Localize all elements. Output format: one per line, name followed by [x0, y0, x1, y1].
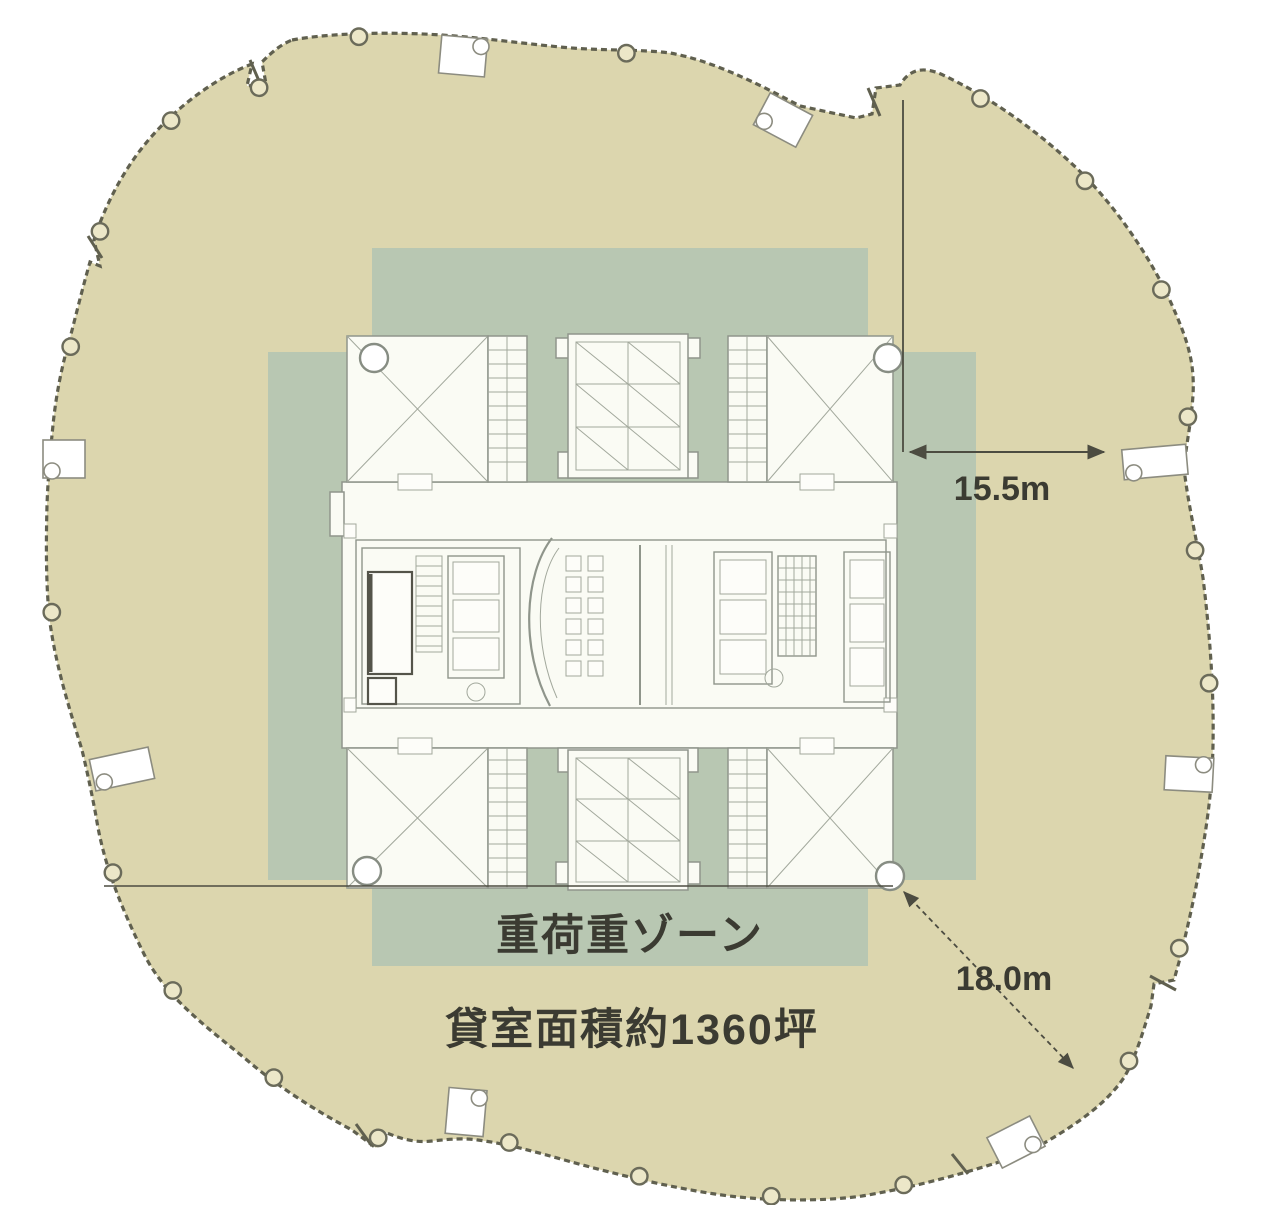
corner-column-icon — [353, 857, 381, 885]
elevator-car-icon — [720, 560, 766, 594]
column-marker-icon — [351, 29, 367, 45]
column-marker-icon — [972, 90, 988, 106]
column-marker-icon — [501, 1134, 517, 1150]
dim-label-18m: 18.0m — [956, 960, 1052, 998]
floor-plan-figure: 15.5m 18.0m 重荷重ゾーン 貸室面積約1360坪 — [0, 0, 1280, 1205]
elevator-car-icon — [720, 600, 766, 634]
column-marker-icon — [1187, 542, 1203, 558]
perimeter-tab — [43, 440, 85, 479]
column-marker-icon — [165, 982, 181, 998]
rental-area-label: 貸室面積約1360坪 — [445, 1006, 819, 1054]
wall-bump — [800, 474, 834, 490]
corner-column-icon — [360, 344, 388, 372]
elevator-car-icon — [720, 640, 766, 674]
column-marker-icon — [763, 1188, 779, 1204]
column-marker-icon — [266, 1069, 282, 1085]
equipment-cabinet — [368, 572, 412, 674]
core-edge-tooth — [344, 524, 356, 538]
elevator-car-icon — [850, 648, 884, 686]
elevator-car-icon — [850, 560, 884, 598]
column-marker-icon — [370, 1130, 386, 1146]
perimeter-tab — [1164, 755, 1214, 792]
column-marker-icon — [1077, 173, 1093, 189]
core-top-row — [347, 334, 893, 490]
column-marker-icon — [1121, 1053, 1137, 1069]
perimeter-tab — [445, 1087, 488, 1136]
dim-label-15-5m: 15.5m — [954, 470, 1050, 508]
column-marker-icon — [618, 45, 634, 61]
corner-column-icon — [874, 344, 902, 372]
core-bottom-row — [347, 738, 893, 890]
column-marker-icon — [62, 338, 78, 354]
column-marker-icon — [105, 864, 121, 880]
wall-bump — [398, 738, 432, 754]
core-edge-tooth — [884, 524, 897, 538]
elevator-car-icon — [850, 604, 884, 642]
column-marker-icon — [251, 80, 267, 96]
elevator-car-icon — [453, 562, 499, 594]
wall-bump — [800, 738, 834, 754]
heavy-load-zone-label: 重荷重ゾーン — [496, 912, 764, 960]
column-marker-icon — [1201, 675, 1217, 691]
elevator-car-icon — [453, 638, 499, 670]
column-marker-icon — [1171, 940, 1187, 956]
equipment-box — [368, 678, 396, 704]
column-marker-icon — [896, 1177, 912, 1193]
building-core — [330, 334, 904, 890]
corridor-stub-west — [330, 492, 344, 536]
wall-bump — [398, 474, 432, 490]
column-marker-icon — [163, 112, 179, 128]
elevator-car-icon — [453, 600, 499, 632]
column-marker-icon — [631, 1168, 647, 1184]
column-marker-icon — [1153, 281, 1169, 297]
column-marker-icon — [92, 223, 108, 239]
perimeter-tab — [439, 35, 490, 77]
core-edge-tooth — [344, 698, 356, 712]
column-marker-icon — [44, 604, 60, 620]
column-marker-icon — [1180, 409, 1196, 425]
